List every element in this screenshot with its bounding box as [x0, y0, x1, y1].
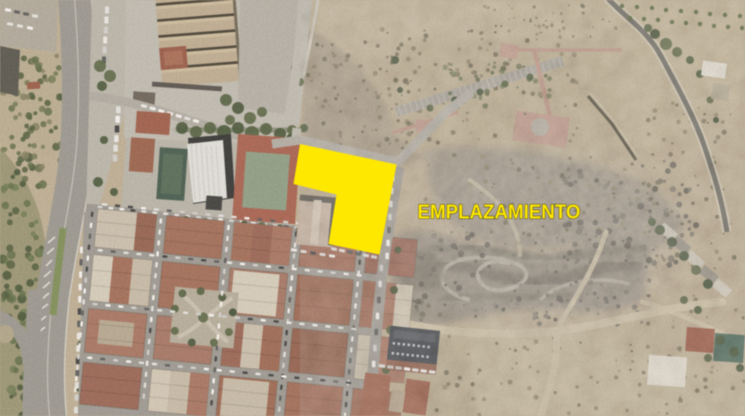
svg-text:EMPLAZAMIENTO: EMPLAZAMIENTO	[418, 200, 581, 223]
